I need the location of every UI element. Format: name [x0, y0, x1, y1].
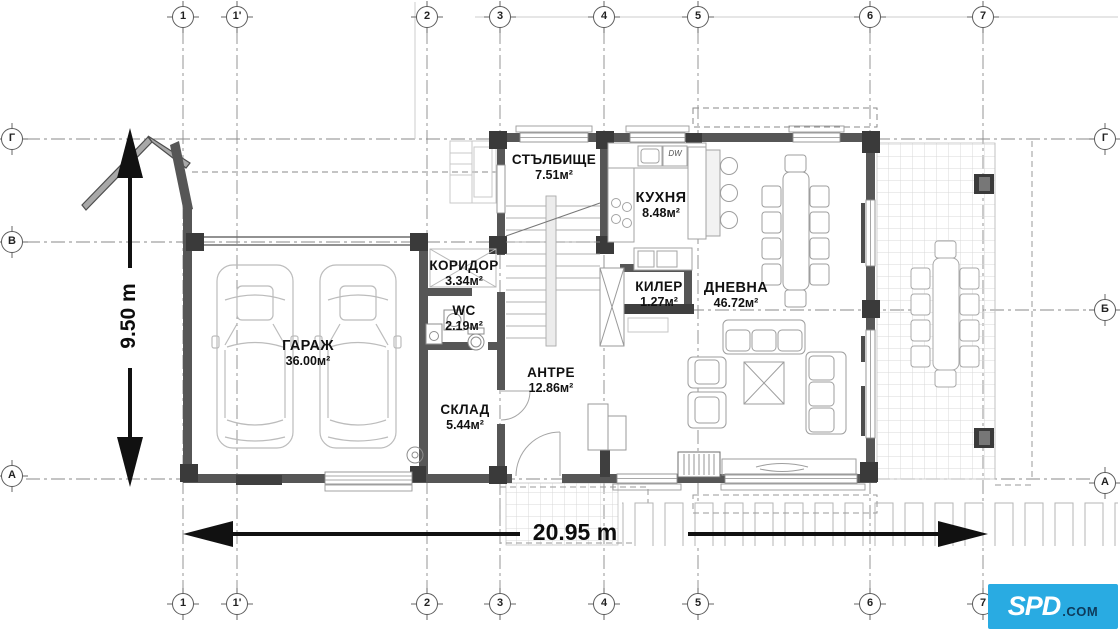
axis-marker-top-1: 1	[172, 6, 194, 28]
floor-plan-page: 1 1' 2 3 4 5 6 7 1 1' 2 3 4 5 6 7 Г В А …	[0, 0, 1120, 632]
axis-marker-left-v: В	[1, 231, 23, 253]
room-label-storage: СКЛАД 5.44м²	[385, 402, 545, 433]
fireplace	[678, 452, 720, 477]
dimension-vertical-label: 9.50 m	[117, 254, 143, 378]
spd-logo-tld: .COM	[1062, 604, 1098, 619]
axis-marker-bottom-4: 4	[593, 593, 615, 615]
axis-marker-top-3: 3	[489, 6, 511, 28]
axis-marker-top-5: 5	[687, 6, 709, 28]
axis-marker-right-g: Г	[1094, 128, 1116, 150]
tv-bench	[722, 459, 856, 475]
axis-marker-bottom-6: 6	[859, 593, 881, 615]
garage-beam	[192, 237, 420, 245]
axis-marker-bottom-2: 2	[416, 593, 438, 615]
spd-logo-name: SPD	[1008, 593, 1061, 620]
axis-marker-bottom-1: 1	[172, 593, 194, 615]
dimension-horizontal-label: 20.95 m	[515, 519, 635, 546]
room-label-kitchen: КУХНЯ 8.48м²	[581, 190, 741, 221]
garden-walkway	[622, 495, 1118, 546]
axis-marker-right-a: А	[1094, 472, 1116, 494]
room-label-entry-hall: АНТРЕ 12.86м²	[471, 365, 631, 396]
entry-closet	[588, 404, 626, 450]
axis-marker-top-7: 7	[972, 6, 994, 28]
axis-marker-right-b: Б	[1094, 299, 1116, 321]
axis-marker-bottom-3: 3	[489, 593, 511, 615]
spd-logo[interactable]: SPD .COM	[988, 584, 1118, 629]
axis-marker-top-1p: 1'	[226, 6, 248, 28]
axis-marker-left-a: А	[1, 465, 23, 487]
room-label-garage: ГАРАЖ 36.00м²	[228, 338, 388, 369]
room-label-staircase: СТЪЛБИЩЕ 7.51м²	[474, 152, 634, 183]
axis-marker-top-6: 6	[859, 6, 881, 28]
reference-lines	[415, 2, 1118, 139]
axis-marker-top-2: 2	[416, 6, 438, 28]
axis-marker-bottom-5: 5	[687, 593, 709, 615]
axis-marker-bottom-1p: 1'	[226, 593, 248, 615]
room-label-wc: WC 2.19м²	[384, 303, 544, 334]
room-label-corridor: КОРИДОР 3.34м²	[384, 258, 544, 289]
room-label-living-room: ДНЕВНА 46.72м²	[656, 280, 816, 311]
sofa-set	[688, 320, 846, 434]
axis-marker-left-g: Г	[1, 128, 23, 150]
upper-floor-overhang-dashed	[693, 108, 877, 127]
dishwasher-label: DW	[662, 149, 688, 158]
axis-marker-top-4: 4	[593, 6, 615, 28]
